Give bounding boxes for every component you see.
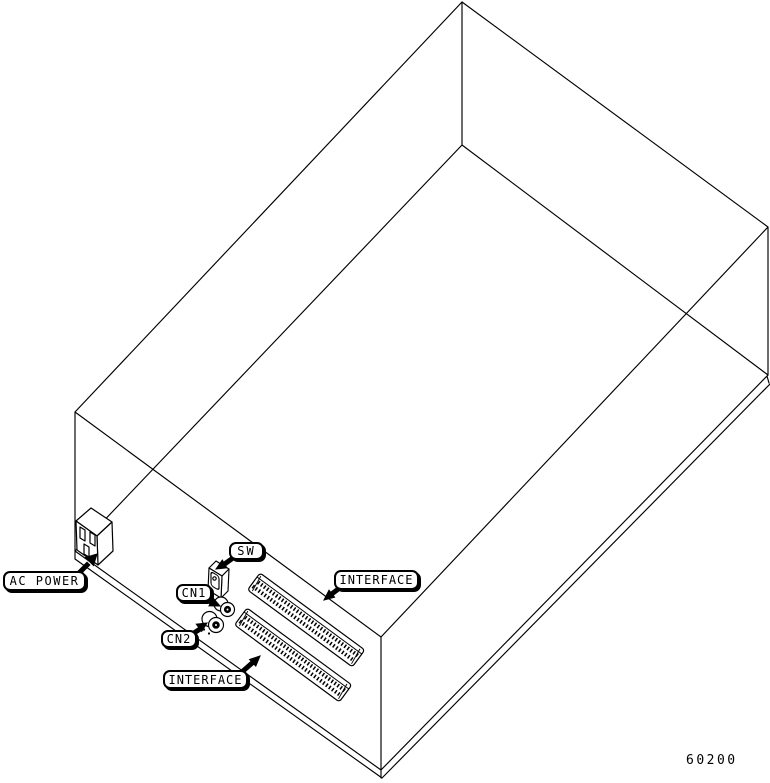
ac-outlet-slot [90, 532, 95, 546]
callout-ac-power-label: AC POWER [10, 574, 80, 588]
callout-cn1-label: CN1 [182, 586, 207, 600]
callout-interface-lower: INTERFACE [163, 670, 248, 689]
callout-sw-label: SW [237, 544, 255, 558]
chassis-line-art [0, 0, 770, 783]
chassis-base-rim [75, 375, 770, 778]
arrow-interface-lower [243, 656, 260, 671]
chassis-wireframe [75, 2, 770, 778]
ac-outlet-slot [84, 544, 89, 557]
figure-number: 60200 [686, 753, 738, 768]
callout-interface-upper: INTERFACE [334, 570, 419, 590]
cn1-connector-drawing [214, 597, 235, 617]
switch-rocker-detail [213, 577, 216, 580]
technical-diagram: AC POWER SW CN1 CN2 INTERFACE INTERFACE … [0, 0, 770, 783]
ac-outlet-slot [80, 527, 85, 541]
callout-cn1: CN1 [176, 584, 212, 602]
callout-ac-power: AC POWER [3, 571, 86, 591]
arrow-cn2 [194, 623, 207, 633]
callout-interface-lower-label: INTERFACE [168, 673, 242, 687]
callout-sw: SW [229, 542, 264, 560]
callout-cn2-label: CN2 [167, 632, 192, 646]
callout-cn2: CN2 [161, 630, 197, 648]
callout-interface-upper-label: INTERFACE [339, 573, 413, 587]
